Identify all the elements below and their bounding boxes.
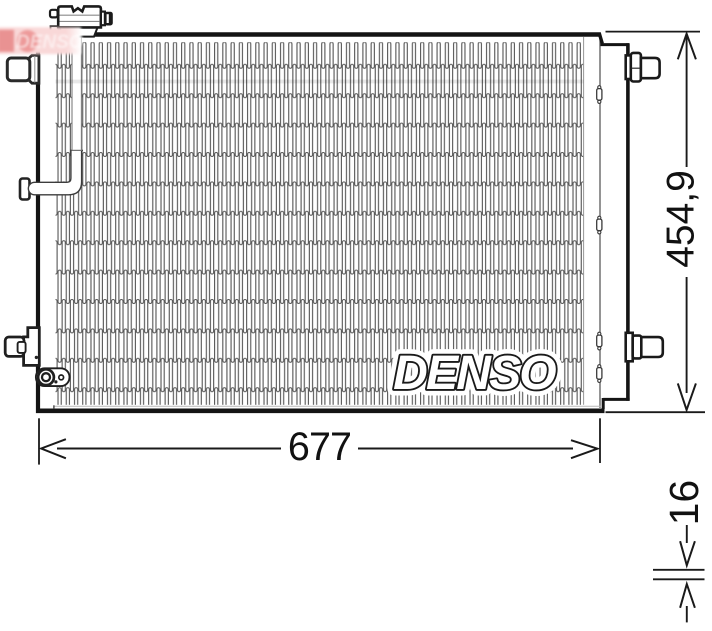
svg-text:DENSO: DENSO	[393, 347, 556, 400]
svg-text:454,9: 454,9	[659, 170, 702, 268]
svg-text:16: 16	[661, 480, 707, 526]
svg-text:DENSO: DENSO	[16, 32, 84, 53]
svg-text:677: 677	[288, 425, 351, 469]
